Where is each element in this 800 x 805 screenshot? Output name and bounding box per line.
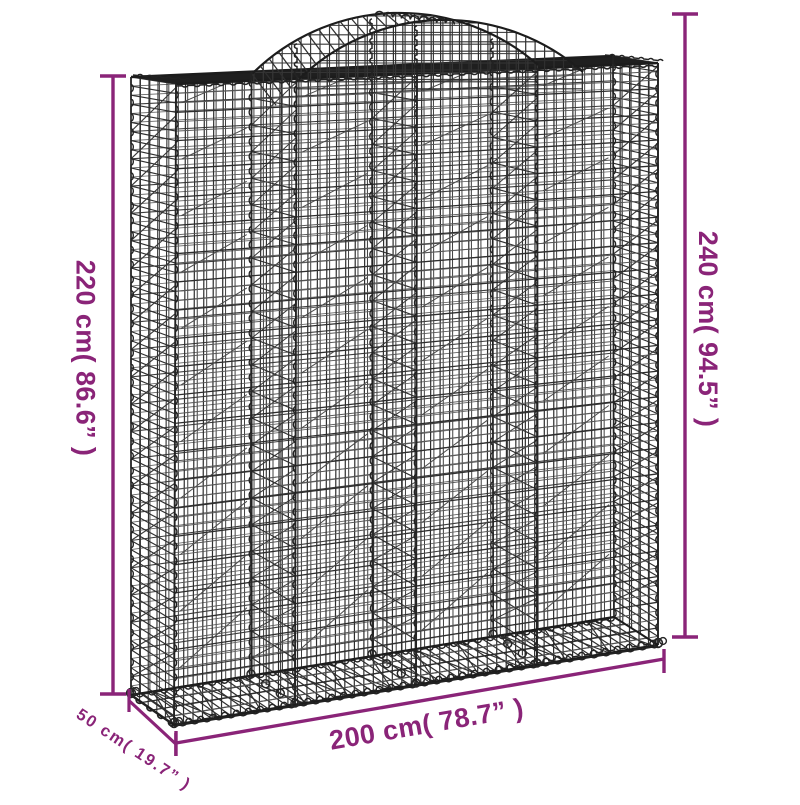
svg-text:200 cm( 78.7” ): 200 cm( 78.7” ) [327, 693, 526, 756]
svg-text:240 cm( 94.5” ): 240 cm( 94.5” ) [693, 231, 723, 428]
svg-text:220 cm( 86.6” ): 220 cm( 86.6” ) [71, 260, 101, 457]
